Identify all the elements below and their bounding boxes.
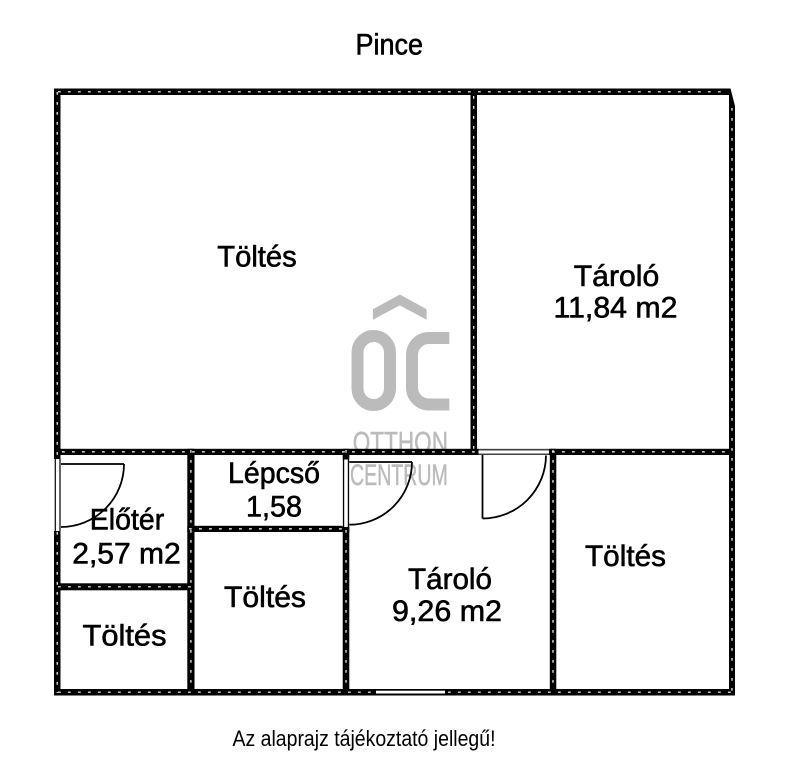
svg-text:Pince: Pince [356,29,424,62]
svg-text:Előtér: Előtér [90,504,165,537]
svg-text:Töltés: Töltés [217,241,297,274]
svg-text:9,26 m2: 9,26 m2 [392,595,502,628]
svg-text:2,57 m2: 2,57 m2 [72,538,181,571]
svg-text:Tároló: Tároló [408,563,492,596]
svg-text:11,84 m2: 11,84 m2 [554,292,678,325]
svg-text:CENTRUM: CENTRUM [350,459,448,492]
svg-text:Töltés: Töltés [585,540,666,573]
svg-text:Töltés: Töltés [224,581,306,614]
svg-text:Töltés: Töltés [83,620,167,653]
svg-text:Lépcső: Lépcső [228,457,320,490]
svg-text:Tároló: Tároló [574,260,660,293]
svg-text:Az alaprajz tájékoztató jelleg: Az alaprajz tájékoztató jellegű! [233,726,496,751]
svg-text:1,58: 1,58 [246,491,302,524]
